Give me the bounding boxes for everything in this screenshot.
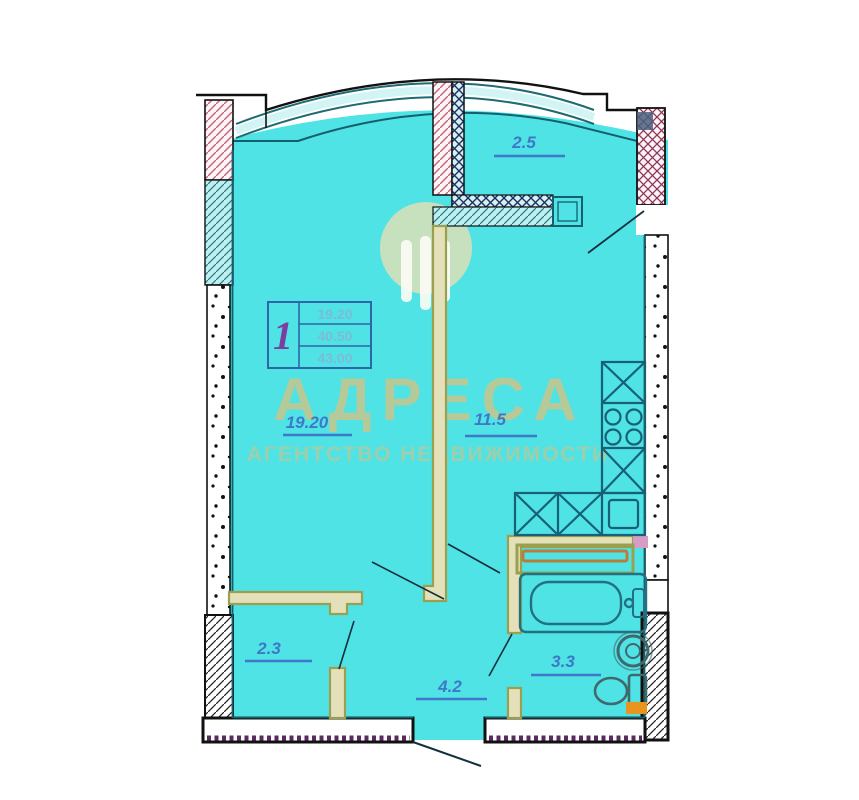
watermark-subtitle: АГЕНТСТВО НЕДВИЖИМОСТИ [247,443,609,466]
left-wall-top-hatched [205,100,233,180]
left-wall-glazed-section [205,180,233,285]
floor-plan-canvas: АДРЕСА АГЕНТСТВО НЕДВИЖИМОСТИ [0,0,859,800]
watermark-logo-bar [420,236,431,310]
info-total-area: 40.50 [317,328,352,344]
right-wall-window [645,580,668,613]
entrance-door-swing [413,742,481,766]
bathroom-door-stub [508,688,521,718]
balcony-door-opening [636,205,669,235]
info-living-area: 19.20 [317,306,352,322]
room-label-living: 19.20 [286,413,329,432]
room-label-bathroom: 3.3 [551,652,575,671]
room-label-kitchen: 11.5 [474,410,506,429]
right-wall-block [637,112,653,130]
room-label-closet: 2.3 [256,639,281,658]
right-wall-concrete [645,235,668,580]
balcony-wall-horizontal [452,195,553,207]
balcony-wall-vertical [433,82,452,195]
info-rooms-count: 1 [273,313,293,358]
closet-door-stub [330,668,345,718]
watermark-logo-bar [401,240,412,302]
balcony-wall-hatch-band [433,207,553,226]
info-total-with-balcony: 43.00 [317,350,352,366]
floor-plan: АДРЕСА АГЕНТСТВО НЕДВИЖИМОСТИ [0,0,859,800]
room-label-hall: 4.2 [437,677,462,696]
pink-marker [633,536,648,548]
left-wall-concrete [207,285,230,615]
balcony-wall-vertical-cross [452,82,464,207]
orange-marker [626,702,647,714]
room-label-balcony: 2.5 [511,133,536,152]
